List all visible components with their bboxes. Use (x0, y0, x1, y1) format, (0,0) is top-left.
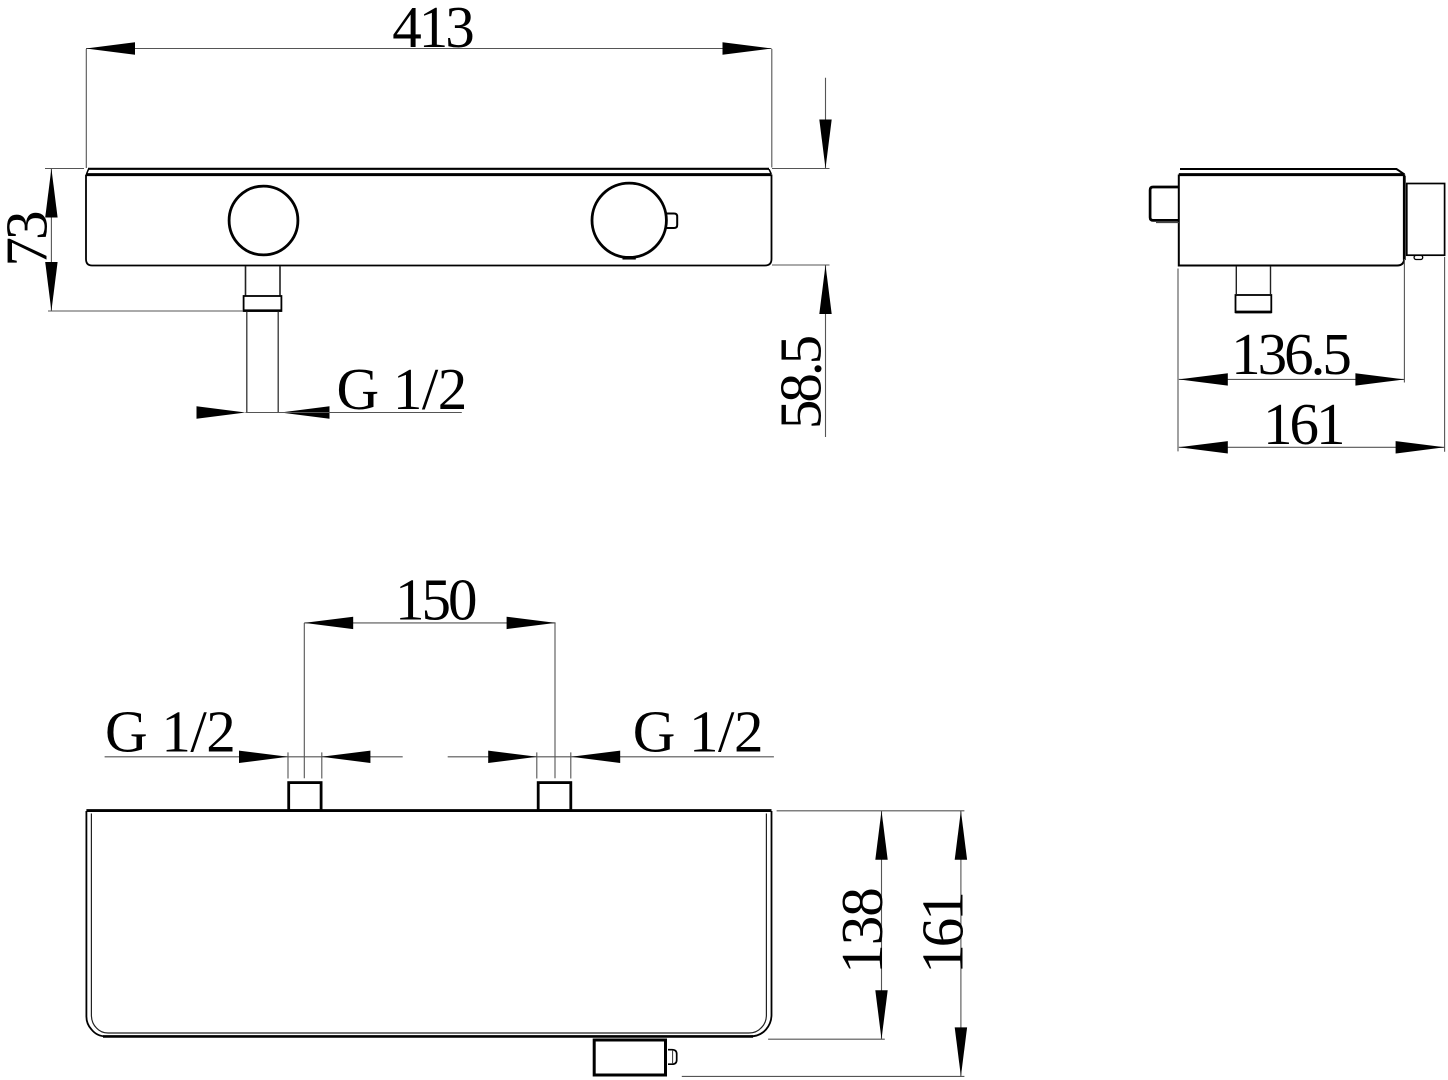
svg-text:G 1/2: G 1/2 (633, 699, 763, 765)
svg-text:G 1/2: G 1/2 (337, 356, 467, 422)
svg-text:161: 161 (910, 894, 976, 974)
svg-text:161: 161 (1263, 391, 1343, 457)
svg-text:136.5: 136.5 (1231, 321, 1350, 387)
svg-text:58.5: 58.5 (768, 336, 834, 429)
svg-text:73: 73 (0, 212, 60, 267)
svg-text:413: 413 (392, 0, 473, 60)
svg-text:138: 138 (829, 888, 895, 974)
svg-text:G 1/2: G 1/2 (105, 699, 235, 765)
svg-text:150: 150 (395, 567, 476, 633)
